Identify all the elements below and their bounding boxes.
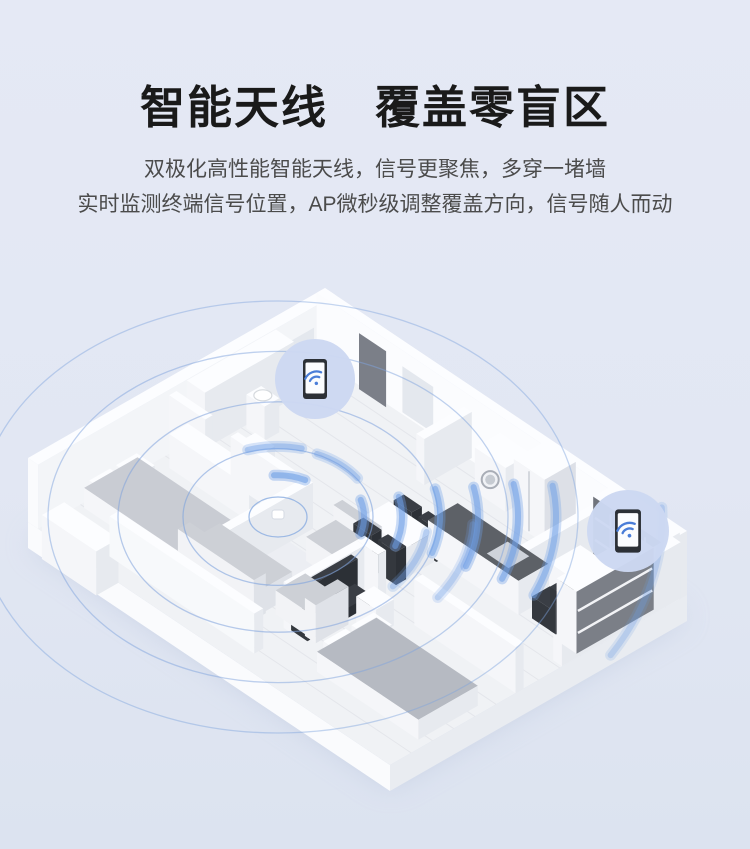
subtitle-line-2: 实时监测终端信号位置，AP微秒级调整覆盖方向，信号随人而动 (0, 187, 750, 222)
smartphone-icon (303, 359, 327, 399)
smartphone-badge-1 (275, 339, 355, 419)
page-title: 智能天线 覆盖零盲区 (0, 80, 750, 136)
smartphone-badge-2 (587, 490, 669, 572)
subtitle-line-1: 双极化高性能智能天线，信号更聚焦，多穿一堵墙 (0, 152, 750, 187)
hero-text: 智能天线 覆盖零盲区 双极化高性能智能天线，信号更聚焦，多穿一堵墙 实时监测终端… (0, 0, 750, 222)
page: 智能天线 覆盖零盲区 双极化高性能智能天线，信号更聚焦，多穿一堵墙 实时监测终端… (0, 0, 750, 849)
smartphone-icon (615, 509, 641, 552)
